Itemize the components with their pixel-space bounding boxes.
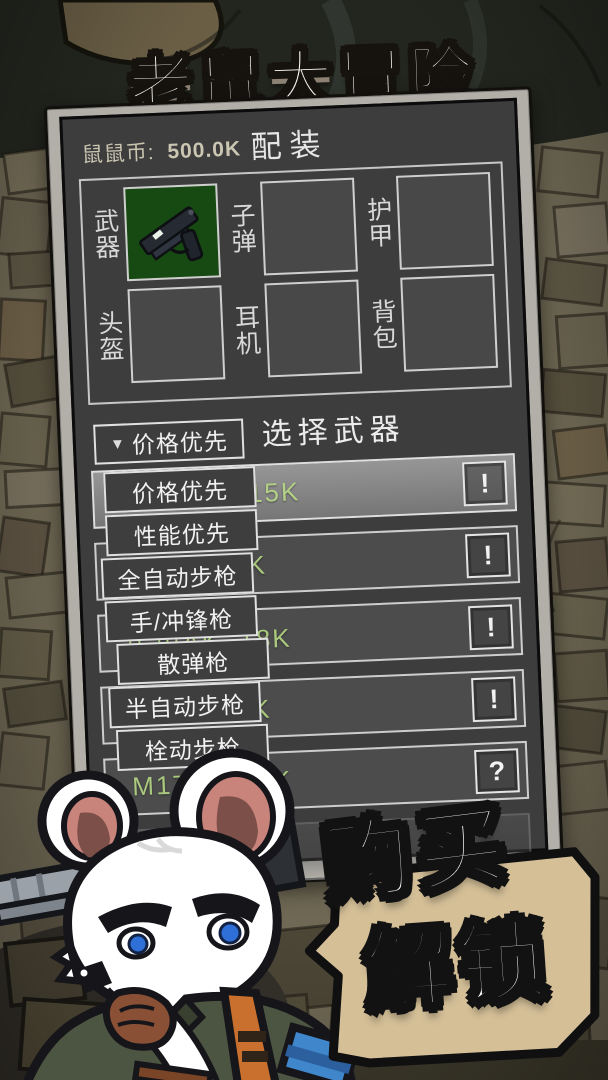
filter-option-price[interactable]: 价格优先 bbox=[103, 466, 257, 513]
equipment-grid: 武器 bbox=[79, 161, 512, 405]
slot-label-ammo: 子弹 bbox=[228, 202, 260, 256]
headset-slot-box[interactable] bbox=[264, 280, 362, 378]
filter-option-performance[interactable]: 性能优先 bbox=[105, 509, 259, 556]
pistol-icon bbox=[125, 184, 219, 280]
equipment-slot-backpack[interactable]: 背包 bbox=[365, 274, 503, 374]
ammo-slot-box[interactable] bbox=[260, 178, 358, 276]
equipment-slot-weapon[interactable]: 武器 bbox=[87, 183, 225, 283]
slot-label-armor: 护甲 bbox=[364, 197, 396, 251]
filter-dropdown-menu: 价格优先 性能优先 全自动步枪 手/冲锋枪 散弹枪 半自动步枪 栓动步枪 bbox=[101, 466, 265, 773]
weapon-info-button[interactable]: ! bbox=[471, 676, 517, 722]
weapon-filter-dropdown-button[interactable]: ▼ 价格优先 bbox=[93, 418, 245, 464]
buy-unlock-banner: 购买 解锁 bbox=[295, 786, 608, 1080]
filter-option-semi-auto-rifle[interactable]: 半自动步枪 bbox=[108, 681, 262, 728]
armor-slot-box[interactable] bbox=[396, 172, 494, 270]
slot-label-helmet: 头盔 bbox=[95, 310, 127, 364]
weapon-section-title: 选择武器 bbox=[261, 404, 407, 454]
filter-option-pistol-smg[interactable]: 手/冲锋枪 bbox=[105, 595, 259, 642]
equipment-slot-ammo[interactable]: 子弹 bbox=[224, 177, 362, 277]
promo-text-unlock: 解锁 bbox=[361, 890, 557, 1028]
chevron-down-icon: ▼ bbox=[110, 435, 127, 453]
helmet-slot-box[interactable] bbox=[127, 285, 225, 383]
game-screen: 老鼠大冒险 鼠鼠币: 500.0K 配装 武器 bbox=[0, 0, 608, 1080]
slot-label-headset: 耳机 bbox=[232, 304, 264, 358]
equipment-slot-armor[interactable]: 护甲 bbox=[360, 172, 498, 272]
weapon-info-button[interactable]: ! bbox=[468, 604, 514, 650]
weapon-slot-box[interactable] bbox=[123, 183, 221, 281]
backpack-slot-box[interactable] bbox=[401, 274, 499, 372]
equipment-slot-helmet[interactable]: 头盔 bbox=[92, 285, 230, 385]
filter-option-full-auto-rifle[interactable]: 全自动步枪 bbox=[101, 552, 255, 599]
equipment-row-bottom: 头盔 耳机 背包 bbox=[85, 265, 509, 384]
weapon-info-button[interactable]: ! bbox=[462, 461, 508, 507]
equipment-slot-headset[interactable]: 耳机 bbox=[228, 279, 366, 379]
weapon-info-button[interactable]: ! bbox=[465, 532, 511, 578]
slot-label-weapon: 武器 bbox=[91, 208, 123, 262]
slot-label-backpack: 背包 bbox=[369, 299, 401, 353]
filter-selected-label: 价格优先 bbox=[131, 422, 228, 460]
filter-option-shotgun[interactable]: 散弹枪 bbox=[116, 638, 270, 685]
equipment-row-top: 武器 bbox=[81, 163, 505, 282]
